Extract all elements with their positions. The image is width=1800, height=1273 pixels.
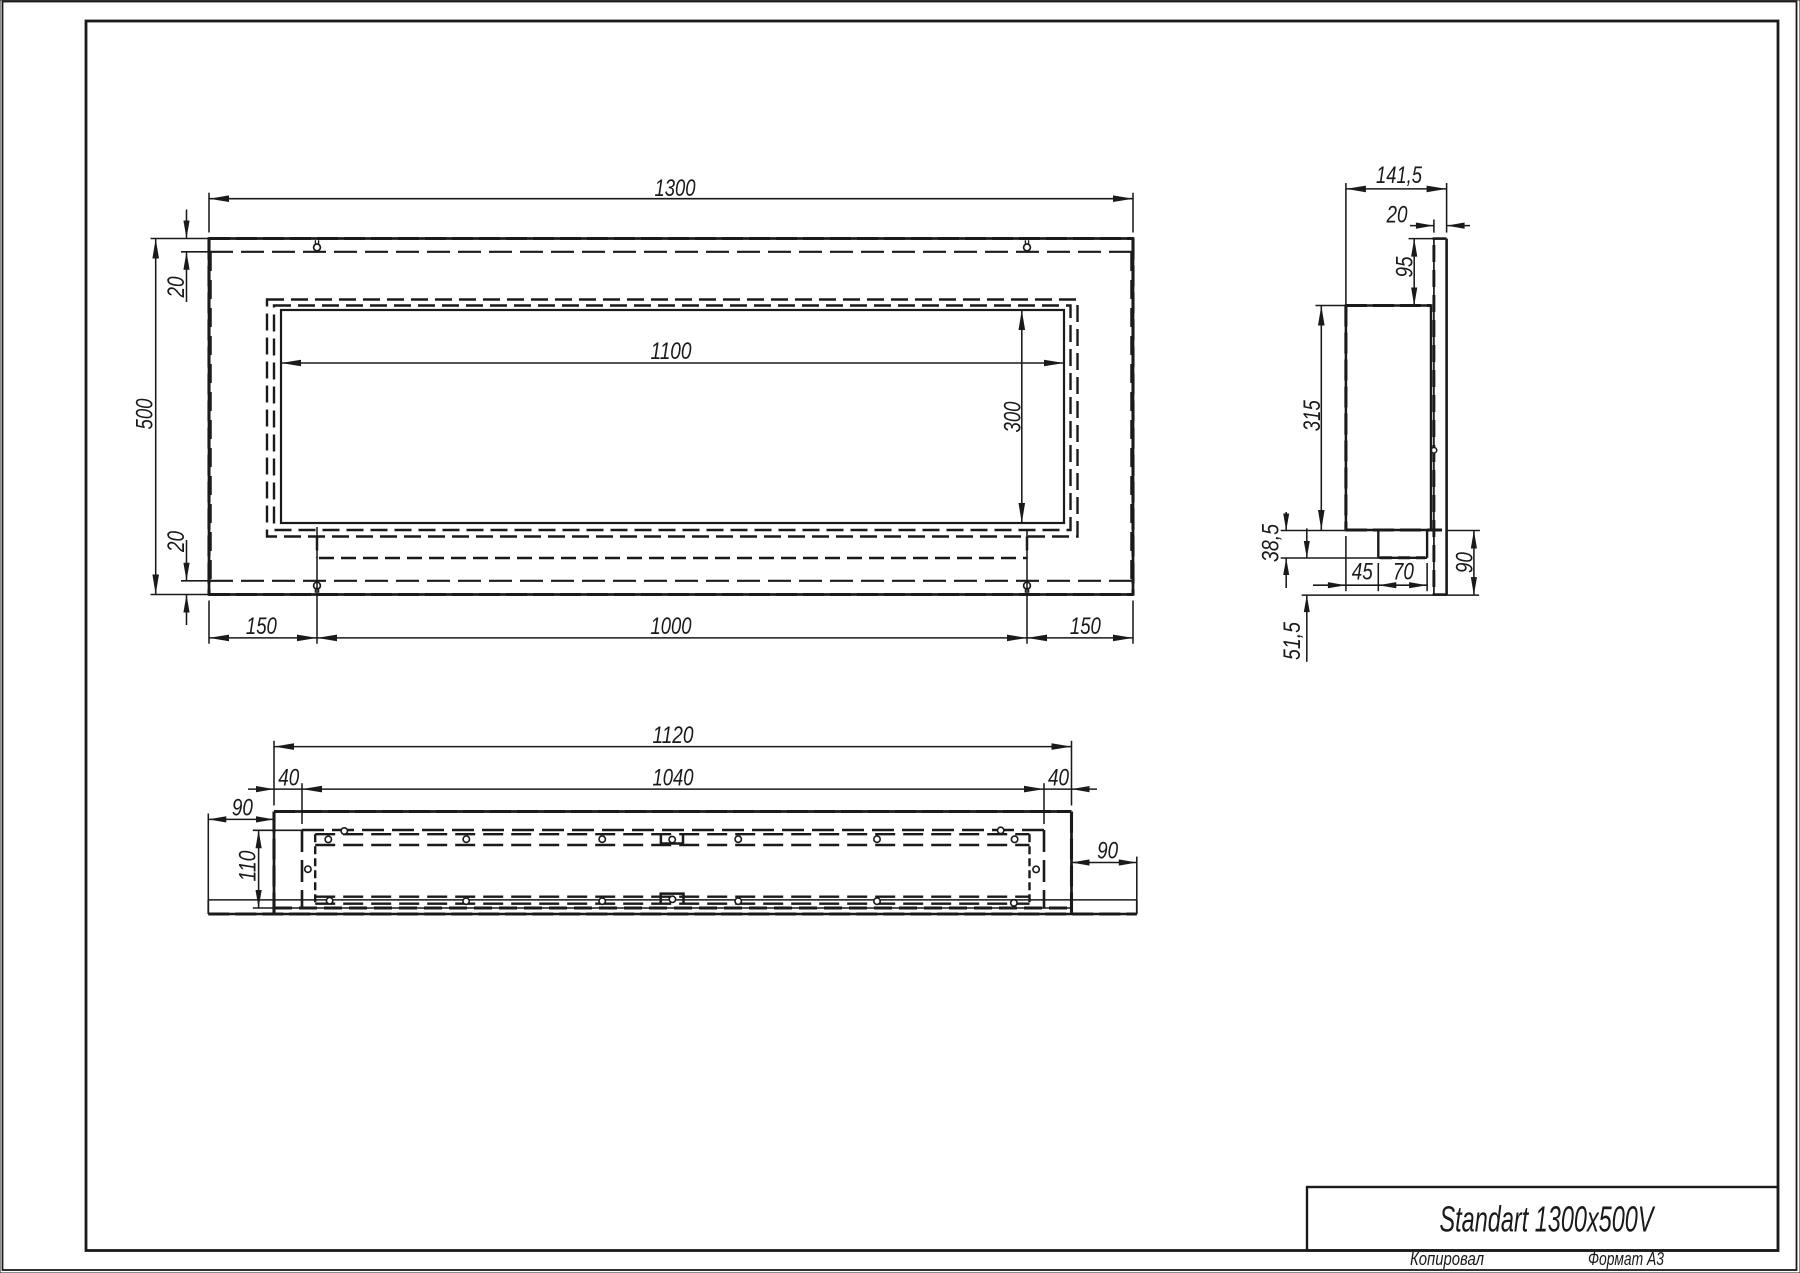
svg-text:1300: 1300: [655, 175, 697, 202]
svg-text:150: 150: [1070, 613, 1102, 640]
svg-text:51,5: 51,5: [1279, 621, 1306, 660]
svg-text:1000: 1000: [651, 613, 693, 640]
svg-text:Standart 1300x500V: Standart 1300x500V: [1440, 1199, 1656, 1240]
svg-text:1100: 1100: [651, 338, 693, 365]
svg-text:90: 90: [1451, 552, 1478, 574]
svg-text:110: 110: [234, 850, 261, 882]
svg-text:150: 150: [246, 613, 278, 640]
svg-text:45: 45: [1352, 558, 1374, 585]
svg-text:1040: 1040: [653, 764, 695, 791]
svg-text:Копировал: Копировал: [1410, 1249, 1484, 1269]
svg-text:Формат А3: Формат А3: [1588, 1249, 1664, 1269]
svg-text:20: 20: [163, 276, 190, 298]
svg-text:40: 40: [1048, 764, 1070, 791]
svg-text:20: 20: [163, 530, 190, 552]
svg-text:20: 20: [1386, 201, 1408, 228]
svg-text:95: 95: [1392, 256, 1419, 278]
svg-text:40: 40: [278, 764, 300, 791]
svg-text:90: 90: [232, 795, 254, 822]
svg-text:38,5: 38,5: [1257, 523, 1284, 562]
svg-text:141,5: 141,5: [1376, 162, 1422, 189]
svg-text:70: 70: [1393, 558, 1415, 585]
svg-text:90: 90: [1097, 838, 1119, 865]
svg-text:300: 300: [999, 401, 1026, 433]
svg-text:1120: 1120: [653, 722, 695, 749]
svg-text:315: 315: [1299, 400, 1326, 432]
svg-text:500: 500: [132, 398, 159, 430]
